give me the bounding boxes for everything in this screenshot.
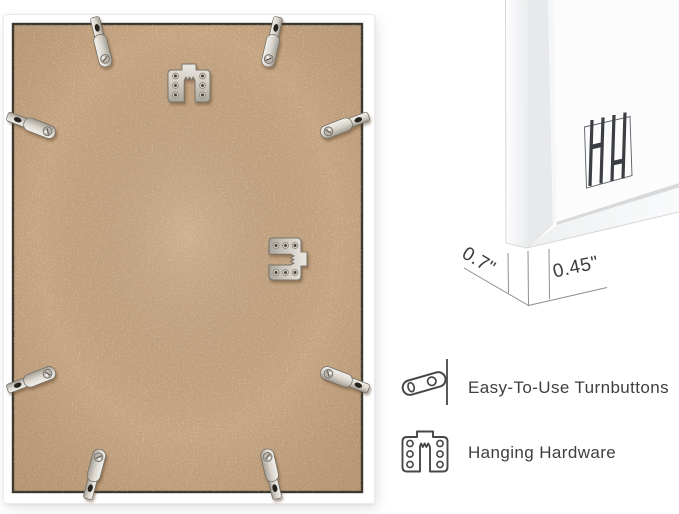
product-infographic: 0.7" 0.45" Easy-To-Use Turnbuttons Hangi… — [0, 0, 679, 514]
feature-label-turnbuttons: Easy-To-Use Turnbuttons — [468, 378, 669, 398]
hanging-hardware-icon — [400, 428, 450, 474]
feature-label-hanging-hardware: Hanging Hardware — [468, 443, 616, 463]
turnbutton-icon — [397, 356, 453, 408]
mdf-board — [13, 24, 362, 492]
frame-back-panel — [3, 14, 375, 504]
